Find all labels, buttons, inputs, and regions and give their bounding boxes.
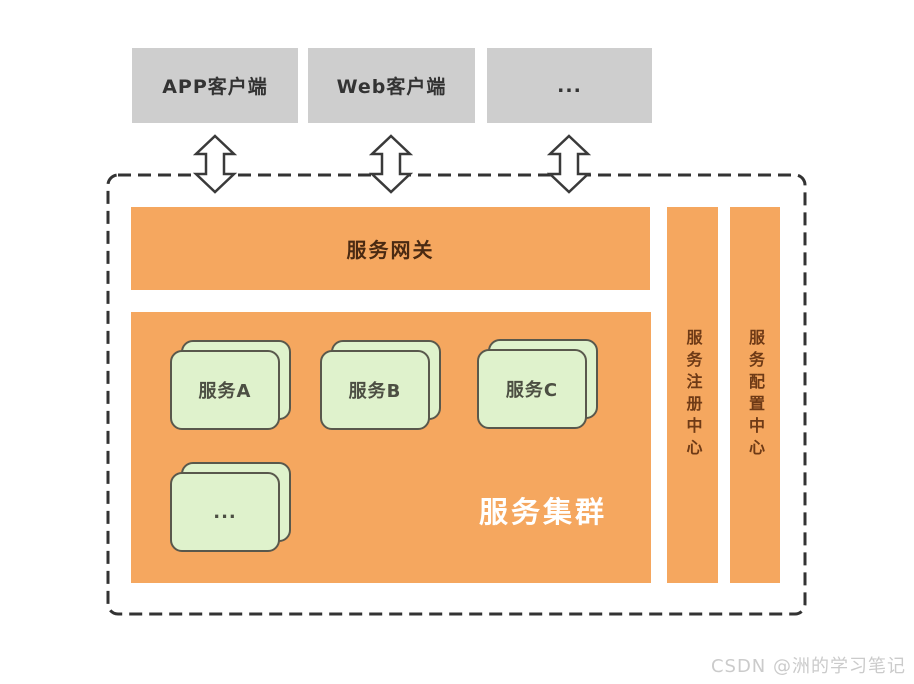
service-stack-c: 服务C [477, 339, 598, 429]
service-gateway-bar: 服务网关 [131, 207, 650, 290]
service-card-label: 服务B [349, 377, 402, 403]
service-registry-center-column: 服务注册中心 [667, 207, 718, 583]
service-stack-more: ... [170, 462, 291, 552]
service-stack-a: 服务A [170, 340, 291, 430]
service-gateway-label: 服务网关 [347, 234, 435, 263]
service-config-center-label: 服务配置中心 [743, 329, 767, 461]
service-card: 服务B [320, 350, 430, 430]
double-arrow-icon [547, 134, 591, 194]
service-card-label: 服务C [506, 376, 558, 402]
double-arrow-icon [193, 134, 237, 194]
service-card: 服务C [477, 349, 587, 429]
service-cluster-box: 服务A 服务B 服务C ... 服务集群 [131, 312, 651, 583]
double-arrow-icon [369, 134, 413, 194]
service-card: 服务A [170, 350, 280, 430]
service-card-label: 服务A [199, 377, 252, 403]
service-card-label: ... [213, 502, 237, 523]
architecture-diagram: APP客户端 Web客户端 ... 服务网关 服务A 服务B [0, 0, 914, 684]
service-cluster-label: 服务集群 [479, 489, 607, 531]
service-stack-b: 服务B [320, 340, 441, 430]
service-card: ... [170, 472, 280, 552]
service-registry-center-label: 服务注册中心 [681, 329, 705, 461]
service-config-center-column: 服务配置中心 [730, 207, 780, 583]
